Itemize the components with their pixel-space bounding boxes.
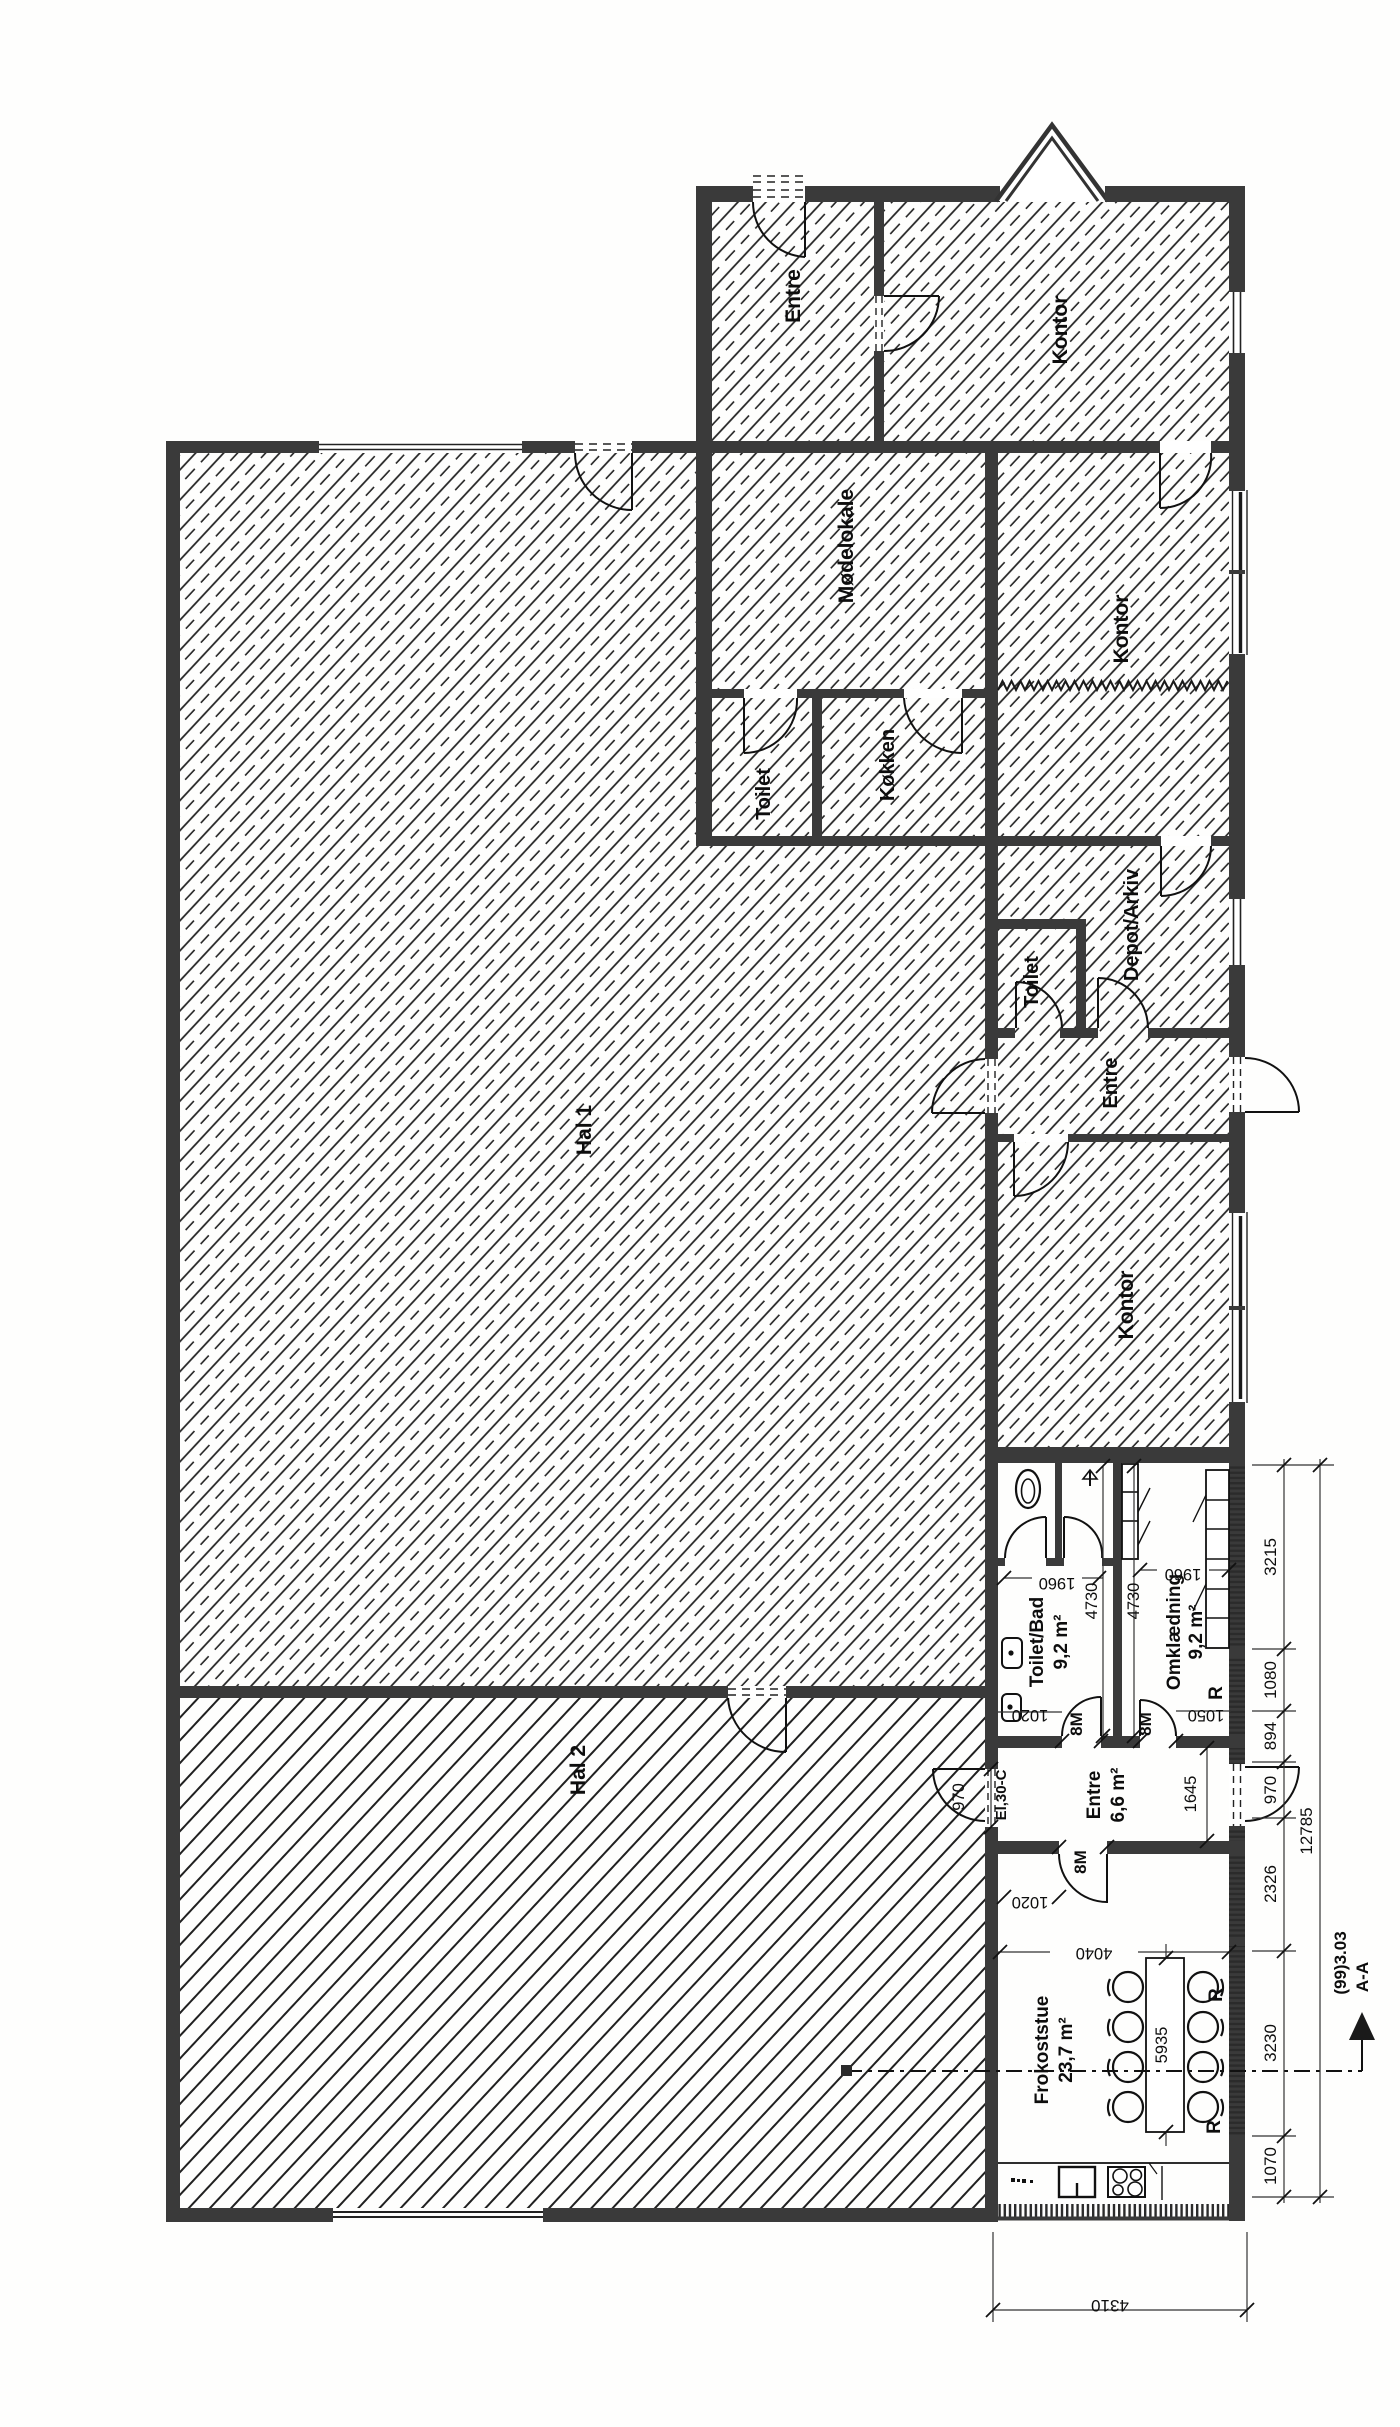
svg-text:23,7 m²: 23,7 m²: [1056, 2017, 1077, 2082]
svg-text:Omklædning: Omklædning: [1164, 1574, 1185, 1690]
svg-text:1020: 1020: [1012, 1706, 1049, 1724]
svg-text:970: 970: [950, 1783, 968, 1811]
svg-text:8M: 8M: [1136, 1712, 1155, 1736]
svg-text:4730: 4730: [1125, 1583, 1143, 1620]
svg-text:5935: 5935: [1153, 2027, 1171, 2064]
svg-text:9,2 m²: 9,2 m²: [1186, 1605, 1207, 1660]
svg-text:9,2 m²: 9,2 m²: [1051, 1615, 1072, 1670]
svg-text:3230: 3230: [1261, 2024, 1280, 2062]
svg-text:Kontor: Kontor: [1110, 595, 1133, 664]
svg-text:970: 970: [1261, 1776, 1280, 1804]
svg-text:3215: 3215: [1261, 1538, 1280, 1576]
svg-text:4310: 4310: [1091, 2296, 1129, 2315]
svg-text:A-A: A-A: [1353, 1962, 1372, 1992]
svg-text:Mødelokale: Mødelokale: [835, 489, 858, 603]
svg-text:Kontor: Kontor: [1049, 296, 1072, 365]
svg-text:4730: 4730: [1083, 1583, 1101, 1620]
svg-text:Entre: Entre: [1084, 1771, 1105, 1820]
svg-text:El,30-C: El,30-C: [993, 1769, 1010, 1820]
svg-text:12785: 12785: [1297, 1807, 1316, 1854]
svg-text:2326: 2326: [1261, 1865, 1280, 1903]
svg-text:(99)3.03: (99)3.03: [1331, 1931, 1350, 1994]
svg-text:Toilet/Bad: Toilet/Bad: [1027, 1597, 1048, 1687]
svg-text:Entre: Entre: [1100, 1057, 1122, 1108]
svg-text:Køkken: Køkken: [877, 729, 899, 801]
svg-text:R: R: [1206, 1686, 1227, 1700]
svg-text:1050: 1050: [1188, 1706, 1225, 1724]
svg-text:1960: 1960: [1039, 1574, 1076, 1592]
svg-text:8M: 8M: [1071, 1850, 1090, 1874]
svg-text:R: R: [1204, 2120, 1225, 2134]
svg-text:4040: 4040: [1076, 1944, 1113, 1962]
svg-text:8M: 8M: [1067, 1712, 1086, 1736]
svg-text:1080: 1080: [1261, 1661, 1280, 1699]
svg-text:R: R: [1206, 1988, 1227, 2002]
svg-text:Hal 2: Hal 2: [567, 1745, 590, 1795]
svg-text:Depot/Arkiv: Depot/Arkiv: [1121, 868, 1143, 981]
svg-text:Toilet: Toilet: [753, 768, 775, 820]
svg-text:1645: 1645: [1182, 1776, 1200, 1813]
svg-text:1020: 1020: [1012, 1893, 1049, 1911]
svg-text:Entre: Entre: [782, 269, 805, 323]
svg-text:6,6 m²: 6,6 m²: [1108, 1768, 1129, 1823]
svg-text:894: 894: [1261, 1722, 1280, 1750]
svg-text:Frokoststue: Frokoststue: [1032, 1996, 1053, 2105]
svg-text:Hal 1: Hal 1: [573, 1105, 596, 1156]
svg-text:1070: 1070: [1261, 2147, 1280, 2185]
svg-text:Kontor: Kontor: [1115, 1271, 1138, 1340]
svg-text:Toilet: Toilet: [1021, 956, 1043, 1008]
